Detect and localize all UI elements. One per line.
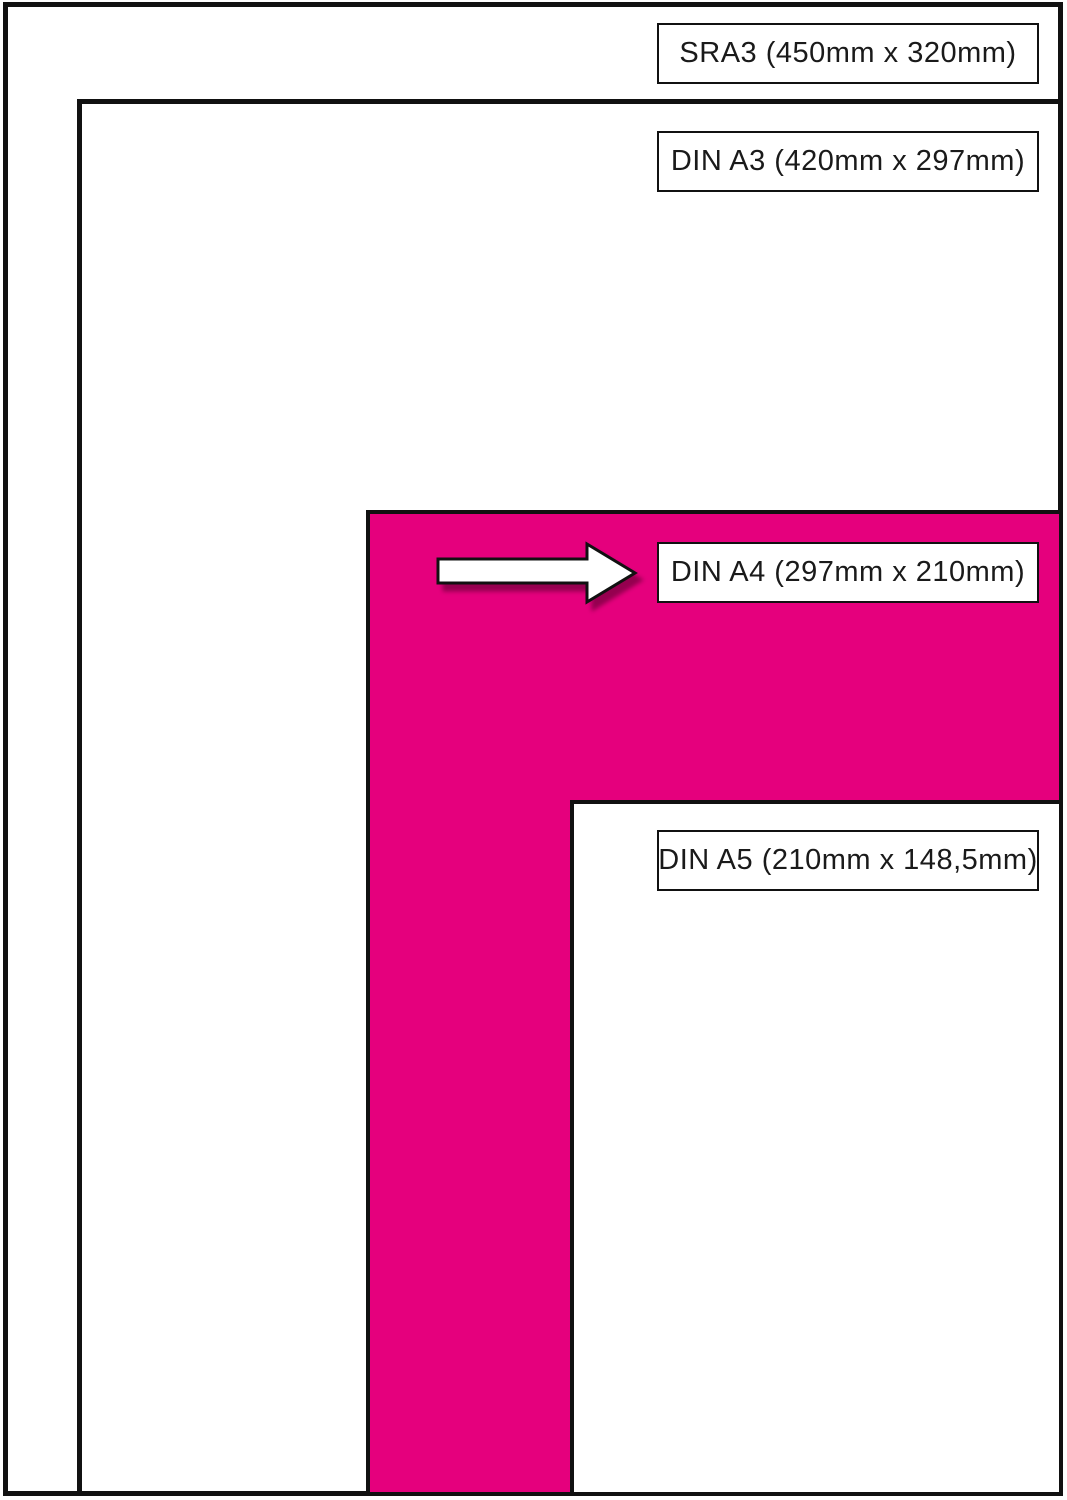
- sra3-label: SRA3 (450mm x 320mm): [657, 23, 1039, 84]
- din-a5-label: DIN A5 (210mm x 148,5mm): [657, 830, 1039, 891]
- din-a3-label: DIN A3 (420mm x 297mm): [657, 131, 1039, 192]
- din-a4-label: DIN A4 (297mm x 210mm): [657, 542, 1039, 603]
- paper-size-comparison-diagram: SRA3 (450mm x 320mm) DIN A3 (420mm x 297…: [0, 0, 1067, 1500]
- din-a5-rectangle: [570, 800, 1063, 1496]
- arrow-right-icon: [432, 538, 642, 608]
